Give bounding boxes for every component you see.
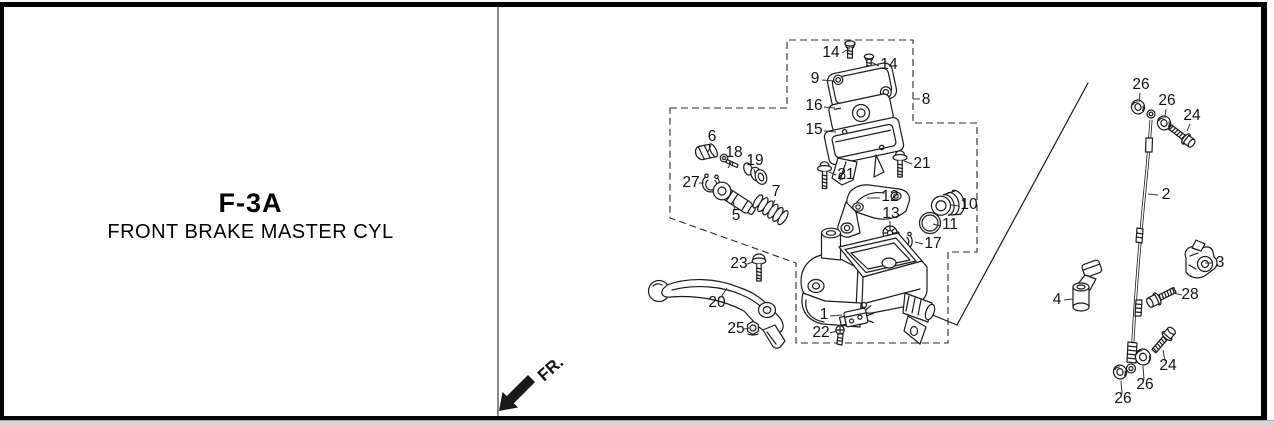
leader-line-23 bbox=[747, 262, 753, 264]
fr-direction: FR. bbox=[491, 353, 567, 419]
part-label-7: 7 bbox=[772, 183, 781, 200]
part-label-24-2: 24 bbox=[1159, 357, 1177, 374]
part-label-22: 22 bbox=[812, 324, 829, 341]
page: F-3A FRONT BRAKE MASTER CYL bbox=[0, 0, 1274, 426]
fr-arrow-icon bbox=[491, 371, 539, 419]
part-label-26-3: 26 bbox=[1136, 376, 1153, 393]
part-2-cable bbox=[1127, 110, 1156, 373]
part-24-bolt-a bbox=[1166, 122, 1197, 149]
part-label-11: 11 bbox=[942, 216, 958, 233]
part-label-4: 4 bbox=[1053, 291, 1062, 308]
part-label-2: 2 bbox=[1162, 186, 1171, 203]
leader-line-24 bbox=[1187, 124, 1190, 131]
part-label-18: 18 bbox=[725, 144, 742, 161]
part-20-brake-lever bbox=[649, 280, 786, 349]
part-label-6: 6 bbox=[708, 128, 717, 145]
part-label-25: 25 bbox=[727, 320, 744, 337]
part-label-27: 27 bbox=[682, 174, 699, 191]
part-label-26-4: 26 bbox=[1114, 390, 1131, 407]
fr-label: FR. bbox=[534, 353, 567, 385]
part-label-9: 9 bbox=[811, 70, 820, 87]
part-label-13: 13 bbox=[882, 205, 899, 222]
part-label-8: 8 bbox=[922, 91, 931, 108]
part-label-1: 1 bbox=[820, 306, 829, 323]
part-26-washer-d bbox=[1111, 363, 1128, 381]
part-label-21-2: 21 bbox=[913, 155, 930, 172]
part-label-26: 26 bbox=[1132, 76, 1149, 93]
part-label-19: 19 bbox=[746, 152, 763, 169]
leader-line-2 bbox=[1148, 194, 1158, 195]
leader-line-21-2 bbox=[904, 161, 912, 164]
part-label-23: 23 bbox=[730, 255, 747, 272]
part-14-screw-a bbox=[845, 41, 855, 58]
part-label-12: 12 bbox=[881, 188, 898, 205]
part-25-nut bbox=[748, 321, 759, 335]
part-label-28: 28 bbox=[1181, 286, 1198, 303]
part-label-20: 20 bbox=[708, 294, 726, 311]
part-3-bracket bbox=[1185, 240, 1217, 278]
part-label-14-2: 14 bbox=[880, 56, 898, 73]
part-23-pivot-bolt bbox=[752, 254, 766, 281]
part-label-16: 16 bbox=[805, 97, 822, 114]
part-label-15: 15 bbox=[805, 121, 822, 138]
part-label-5: 5 bbox=[732, 207, 741, 224]
part-label-17: 17 bbox=[924, 235, 941, 252]
leader-line-17 bbox=[915, 242, 923, 244]
part-4-bracket bbox=[1073, 259, 1103, 311]
parts-diagram: FR. 141491615821211213101117122232025618… bbox=[0, 0, 1274, 426]
part-label-10: 10 bbox=[960, 196, 978, 213]
part-28-bolt bbox=[1145, 284, 1178, 309]
part-label-3: 3 bbox=[1216, 254, 1225, 271]
leader-line-4 bbox=[1064, 299, 1073, 300]
part-label-21: 21 bbox=[837, 166, 854, 183]
part-21-bolt-b bbox=[893, 151, 907, 177]
part-label-26-2: 26 bbox=[1158, 92, 1175, 109]
part-11-o-ring bbox=[920, 213, 941, 234]
part-21-bolt-a bbox=[818, 162, 832, 189]
part-label-24: 24 bbox=[1183, 107, 1201, 124]
part-26-washer-a bbox=[1129, 98, 1146, 116]
leader-line-10 bbox=[951, 205, 959, 206]
part-22-screw bbox=[836, 326, 844, 345]
part-label-14: 14 bbox=[822, 44, 840, 61]
part-7-spring bbox=[751, 193, 790, 226]
